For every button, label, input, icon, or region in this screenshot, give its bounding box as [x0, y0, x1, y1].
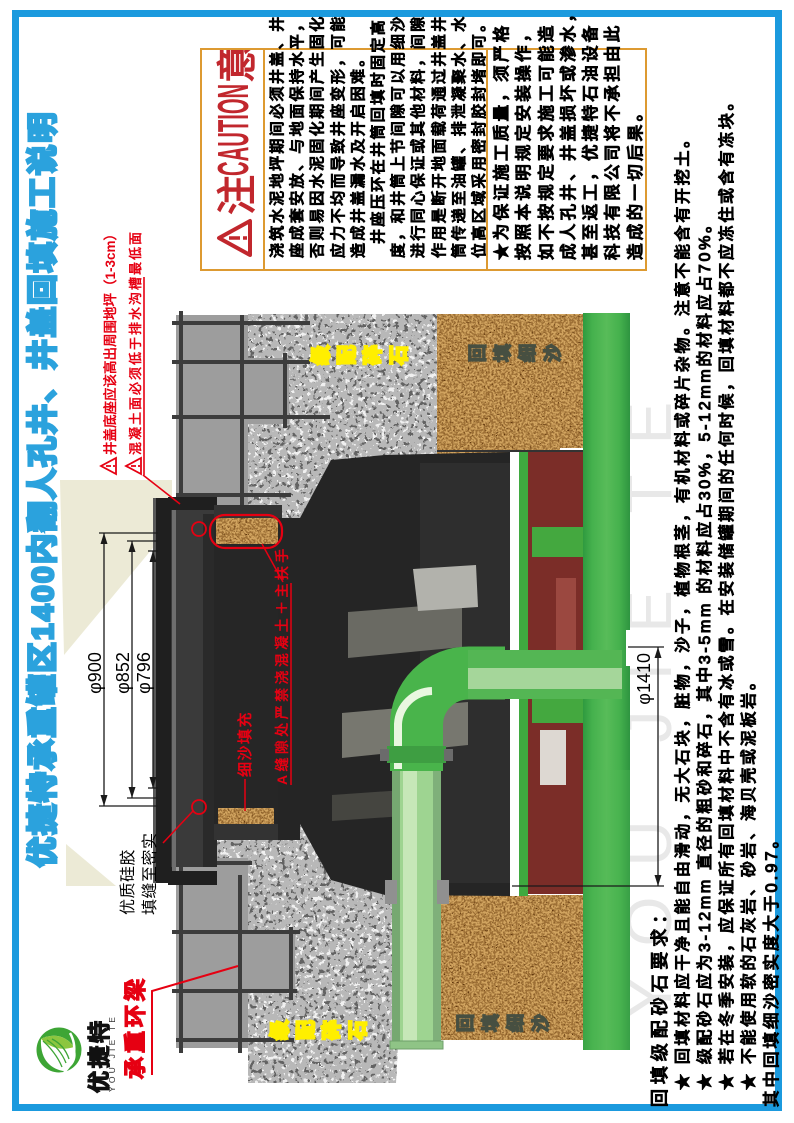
svg-text:CAUTION: CAUTION	[209, 84, 258, 176]
svg-text:注: 注	[216, 175, 260, 215]
svg-text:意: 意	[216, 50, 260, 83]
